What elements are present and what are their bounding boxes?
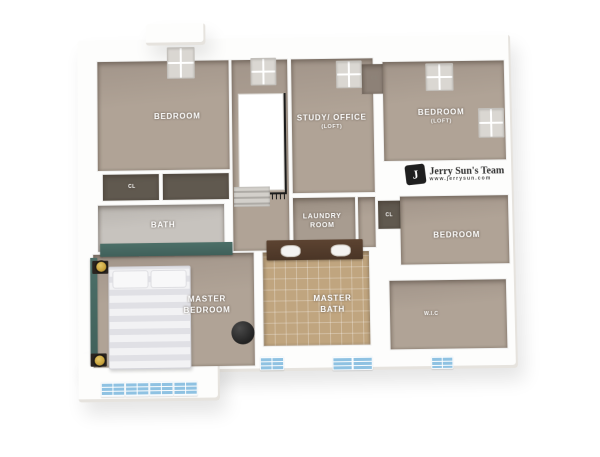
window-bottom-5 <box>260 356 284 371</box>
laundry-line1: LAUNDRY <box>303 212 342 222</box>
closet-hall-floor-2 <box>163 173 229 200</box>
chimney-bump <box>146 23 206 45</box>
study-office-text: STUDY/ OFFICE <box>297 113 367 123</box>
laundry-line2: ROOM <box>303 221 342 231</box>
floorplan-3d-render: BEDROOM STUDY/ OFFICE (LOFT) BEDROOM (LO… <box>0 0 600 457</box>
window-loft-top <box>425 63 453 91</box>
closet-hall-label: CL <box>128 184 136 191</box>
stair-railing <box>239 93 287 195</box>
window-seat <box>100 242 232 257</box>
bedroom-loft-note: (LOFT) <box>418 118 465 126</box>
bedroom-loft-text: BEDROOM <box>418 107 465 117</box>
bedroom-loft-label: BEDROOM (LOFT) <box>418 107 465 126</box>
closet-laundry-label: CL <box>385 212 393 219</box>
window-bottom-6 <box>431 356 453 369</box>
lamp-top <box>96 262 106 272</box>
sink-left <box>281 245 301 257</box>
jerry-suns-team-logo-icon: J <box>404 163 426 185</box>
watermark-text: Jerry Sun's Team www.jerrysun.com <box>429 165 504 182</box>
window-bottom-2 <box>125 381 149 397</box>
closet-study-label: CL <box>371 76 379 83</box>
window-study-top <box>336 60 362 88</box>
walk-in-closet-floor <box>389 279 507 349</box>
walk-in-closet-text: W.I.C <box>424 311 438 317</box>
window-bottom-1 <box>101 381 125 397</box>
sink-right <box>331 244 351 256</box>
master-bath-line2: BATH <box>314 305 352 316</box>
bedroom-right-text: BEDROOM <box>433 230 480 240</box>
closet-laundry-text: CL <box>385 212 393 218</box>
bedroom-top-left-label: BEDROOM <box>154 112 201 123</box>
master-bath-label: MASTER BATH <box>313 294 351 316</box>
floorplan-stage: BEDROOM STUDY/ OFFICE (LOFT) BEDROOM (LO… <box>0 0 600 450</box>
bedroom-top-left-text: BEDROOM <box>154 112 201 122</box>
window-bottom-double <box>332 356 373 371</box>
study-office-note: (LOFT) <box>297 123 367 131</box>
master-bath-line1: MASTER <box>313 294 351 305</box>
bed-pillow-left <box>112 270 148 289</box>
window-hall-top <box>250 58 276 86</box>
watermark: J Jerry Sun's Team www.jerrysun.com <box>405 163 504 184</box>
stair-steps <box>234 186 270 206</box>
master-bedroom-line1: MASTER <box>183 294 230 306</box>
window-loft-right <box>478 108 505 138</box>
master-bedroom-line2: BEDROOM <box>184 305 231 317</box>
bath-label: BATH <box>151 220 176 231</box>
window-bottom-4 <box>173 380 197 396</box>
walk-in-closet-label: W.I.C <box>424 311 438 318</box>
watermark-website: www.jerrysun.com <box>430 176 505 183</box>
master-bedroom-label: MASTER BEDROOM <box>183 294 230 316</box>
window-bottom-3 <box>149 381 173 397</box>
window-chimney <box>167 47 195 79</box>
closet-study-text: CL <box>371 76 379 82</box>
bedroom-right-label: BEDROOM <box>433 230 480 241</box>
study-office-label: STUDY/ OFFICE (LOFT) <box>297 113 367 132</box>
bed-pillow-right <box>150 270 186 289</box>
bath-text: BATH <box>151 220 176 229</box>
laundry-room-label: LAUNDRY ROOM <box>303 212 342 231</box>
closet-hall-text: CL <box>128 184 136 190</box>
